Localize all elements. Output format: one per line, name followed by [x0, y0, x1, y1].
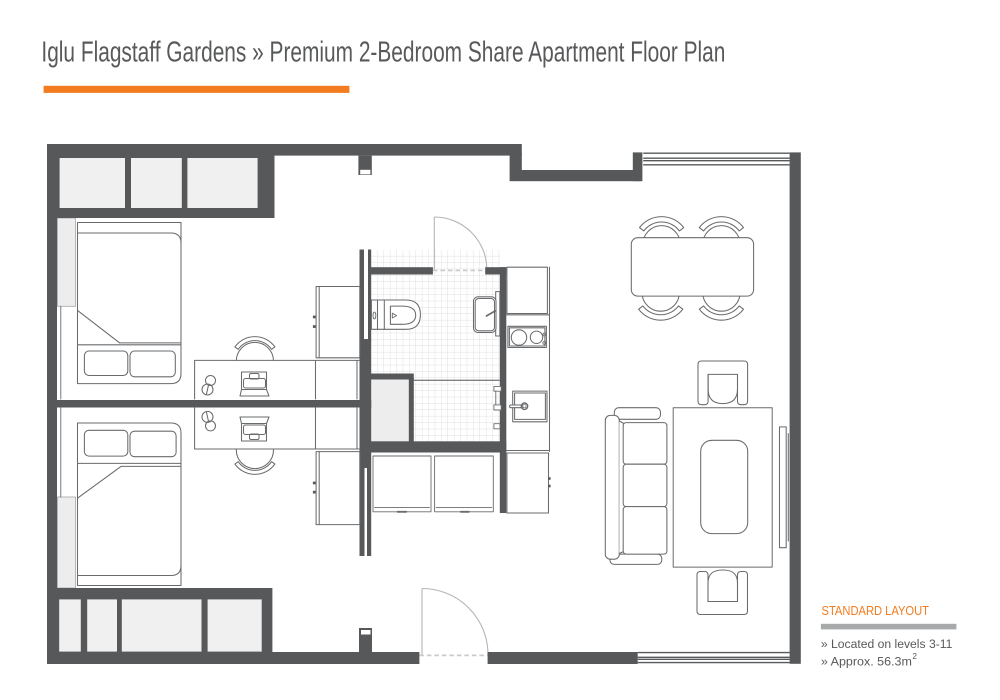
svg-text:STANDARD LAYOUT: STANDARD LAYOUT [822, 604, 930, 618]
svg-text:2: 2 [912, 652, 917, 661]
svg-text:» Located on levels 3-11: » Located on levels 3-11 [821, 637, 953, 651]
svg-text:Iglu Flagstaff Gardens » Premi: Iglu Flagstaff Gardens » Premium 2-Bedro… [41, 37, 725, 69]
svg-text:» Approx. 56.3m: » Approx. 56.3m [821, 655, 912, 669]
